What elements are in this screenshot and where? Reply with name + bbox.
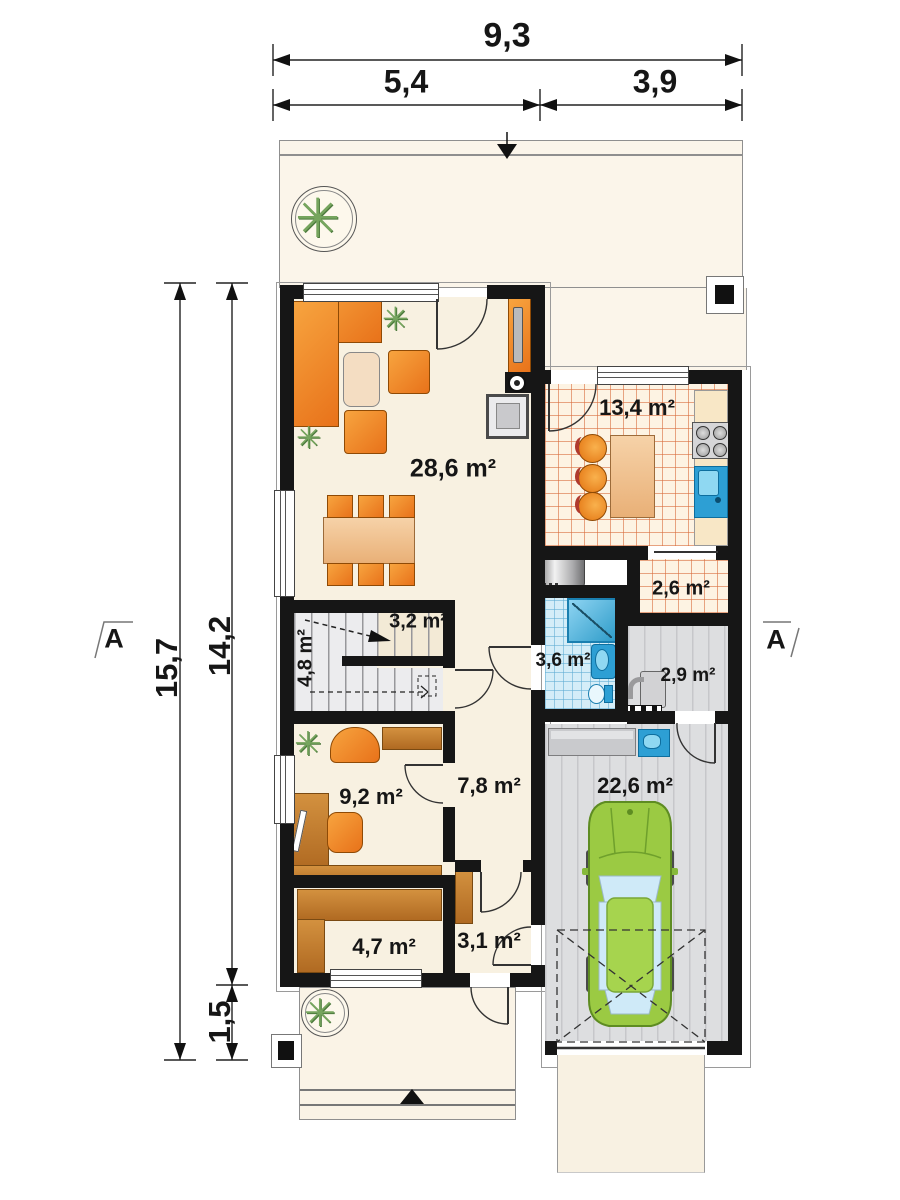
- tv-screen: [513, 307, 523, 363]
- wall-segment: [615, 585, 628, 722]
- window: [597, 366, 689, 385]
- shower: [567, 598, 617, 643]
- wall-segment: [443, 807, 455, 862]
- wall-segment: [545, 1041, 557, 1055]
- column-core: [278, 1041, 294, 1060]
- sink-basin: [643, 734, 661, 749]
- kitchen-chair: [578, 434, 607, 463]
- wall-segment: [531, 690, 545, 925]
- wall-segment: [627, 711, 675, 724]
- wall-segment: [707, 1041, 742, 1055]
- section-marker-a-left: A: [104, 624, 124, 655]
- washbasin: [591, 644, 616, 679]
- dining-table: [323, 517, 415, 564]
- dining-chair: [327, 563, 353, 586]
- room-label-pantry: 2,6 m²: [652, 578, 710, 601]
- room-label-wardrobe: 4,7 m²: [352, 934, 416, 960]
- sink-basin: [698, 470, 719, 496]
- wall-segment: [531, 965, 545, 987]
- entry-closet: [455, 870, 473, 924]
- wall-segment: [280, 711, 455, 724]
- coffee-table: [343, 352, 380, 407]
- plant-icon: ✳: [382, 303, 409, 335]
- window: [303, 283, 439, 302]
- wall-segment: [280, 285, 294, 490]
- room-label-living: 28,6 m²: [410, 455, 496, 484]
- wall-segment: [715, 711, 742, 724]
- window: [274, 755, 295, 824]
- room-label-entry: 3,1 m²: [457, 928, 521, 954]
- dining-chair: [327, 495, 353, 518]
- workbench: [548, 728, 636, 756]
- stove: [692, 422, 730, 459]
- wall-segment: [280, 822, 294, 987]
- wall-segment: [523, 860, 531, 872]
- speaker: [508, 374, 526, 392]
- room-label-utility: 2,9 m²: [661, 665, 716, 687]
- room-label-stairs-lower: 4,8 m²: [295, 629, 318, 687]
- floor-plan: ✳ ✳ ✳ ✳ ✳: [0, 0, 900, 1200]
- wall-segment: [280, 595, 294, 755]
- wall-segment: [455, 860, 481, 872]
- armchair: [344, 410, 387, 454]
- wall-segment: [531, 585, 627, 598]
- wall-segment: [545, 370, 551, 384]
- porch-step-line: [300, 1104, 515, 1106]
- office-shelf: [382, 727, 442, 750]
- toilet: [588, 681, 614, 707]
- corner-sofa: [293, 301, 339, 427]
- fireplace-core: [496, 403, 520, 429]
- room-label-kitchen: 13,4 m²: [599, 395, 675, 421]
- dining-chair: [358, 563, 384, 586]
- dim-depth-total: 15,7: [149, 638, 185, 698]
- section-marker-a-right: A: [766, 625, 786, 656]
- armchair: [388, 350, 430, 394]
- window: [330, 969, 422, 988]
- plant-icon: ✳: [304, 994, 336, 1032]
- porch-step-line: [300, 1089, 515, 1091]
- dining-chair: [389, 495, 415, 518]
- column: [271, 1034, 302, 1068]
- wall-segment: [443, 724, 455, 763]
- room-label-stairs-upper: 3,2 m²: [389, 611, 447, 634]
- garage-sink: [638, 729, 670, 757]
- terrace-edge-line: [280, 154, 742, 156]
- kitchen-sink: [694, 466, 728, 518]
- basin-bowl: [595, 649, 609, 671]
- room-label-garage: 22,6 m²: [597, 773, 673, 799]
- office-chair: [327, 812, 363, 853]
- wardrobe-closet: [297, 919, 325, 973]
- wall-segment: [627, 613, 742, 626]
- room-label-office: 9,2 m²: [339, 784, 403, 810]
- window: [274, 490, 295, 597]
- wall-segment: [716, 546, 728, 560]
- stairs-divider: [342, 656, 443, 666]
- dim-depth-main: 14,2: [202, 616, 238, 676]
- kitchen-table: [610, 435, 655, 518]
- toilet-bowl: [588, 684, 605, 704]
- workbench-top: [551, 731, 633, 739]
- dining-chair: [389, 563, 415, 586]
- room-label-hall: 7,8 m²: [457, 773, 521, 799]
- toilet-tank: [604, 685, 613, 703]
- kitchen-chair: [578, 464, 607, 493]
- plant-icon: ✳: [296, 424, 321, 454]
- speaker-dot: [514, 380, 520, 386]
- room-label-bathroom: 3,6 m²: [536, 650, 591, 672]
- wall-segment: [531, 709, 627, 722]
- floor-garage: [545, 724, 728, 1041]
- plant-icon: ✳: [295, 192, 340, 246]
- boiler-pipe: [628, 677, 644, 699]
- plant-icon: ✳: [294, 727, 322, 760]
- dim-depth-porch: 1,5: [202, 1000, 238, 1043]
- column: [706, 276, 744, 314]
- dim-width-right: 3,9: [633, 64, 677, 101]
- wall-segment: [280, 973, 330, 987]
- dim-width-left: 5,4: [384, 64, 428, 101]
- dim-width-total: 9,3: [483, 17, 530, 56]
- sink-faucet: [715, 497, 721, 503]
- wardrobe-closet: [297, 889, 442, 921]
- kitchen-chair: [578, 492, 607, 521]
- column-core: [715, 285, 734, 304]
- wall-segment: [443, 875, 455, 987]
- wall-segment: [280, 875, 455, 888]
- stairs-lower-flight: [377, 668, 443, 711]
- fireplace: [486, 394, 529, 439]
- tv-cabinet: [508, 298, 531, 374]
- driveway-apron: [557, 1055, 705, 1173]
- dining-chair: [358, 495, 384, 518]
